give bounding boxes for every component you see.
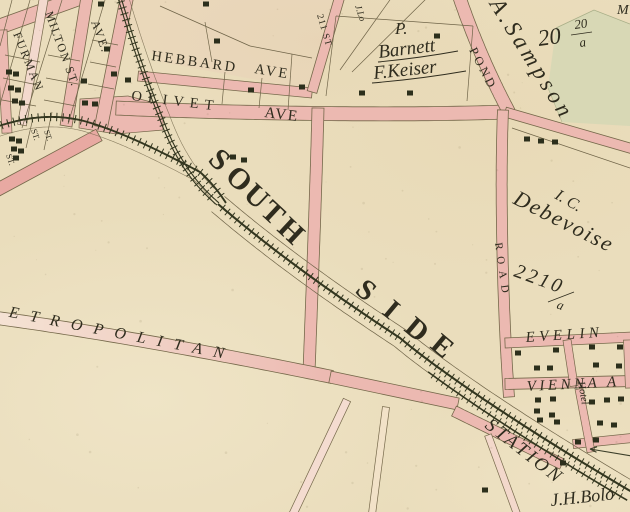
svg-text:20: 20 <box>536 23 563 51</box>
svg-text:P.: P. <box>394 19 407 38</box>
svg-text:20: 20 <box>573 15 588 32</box>
svg-text:M: M <box>616 3 630 18</box>
